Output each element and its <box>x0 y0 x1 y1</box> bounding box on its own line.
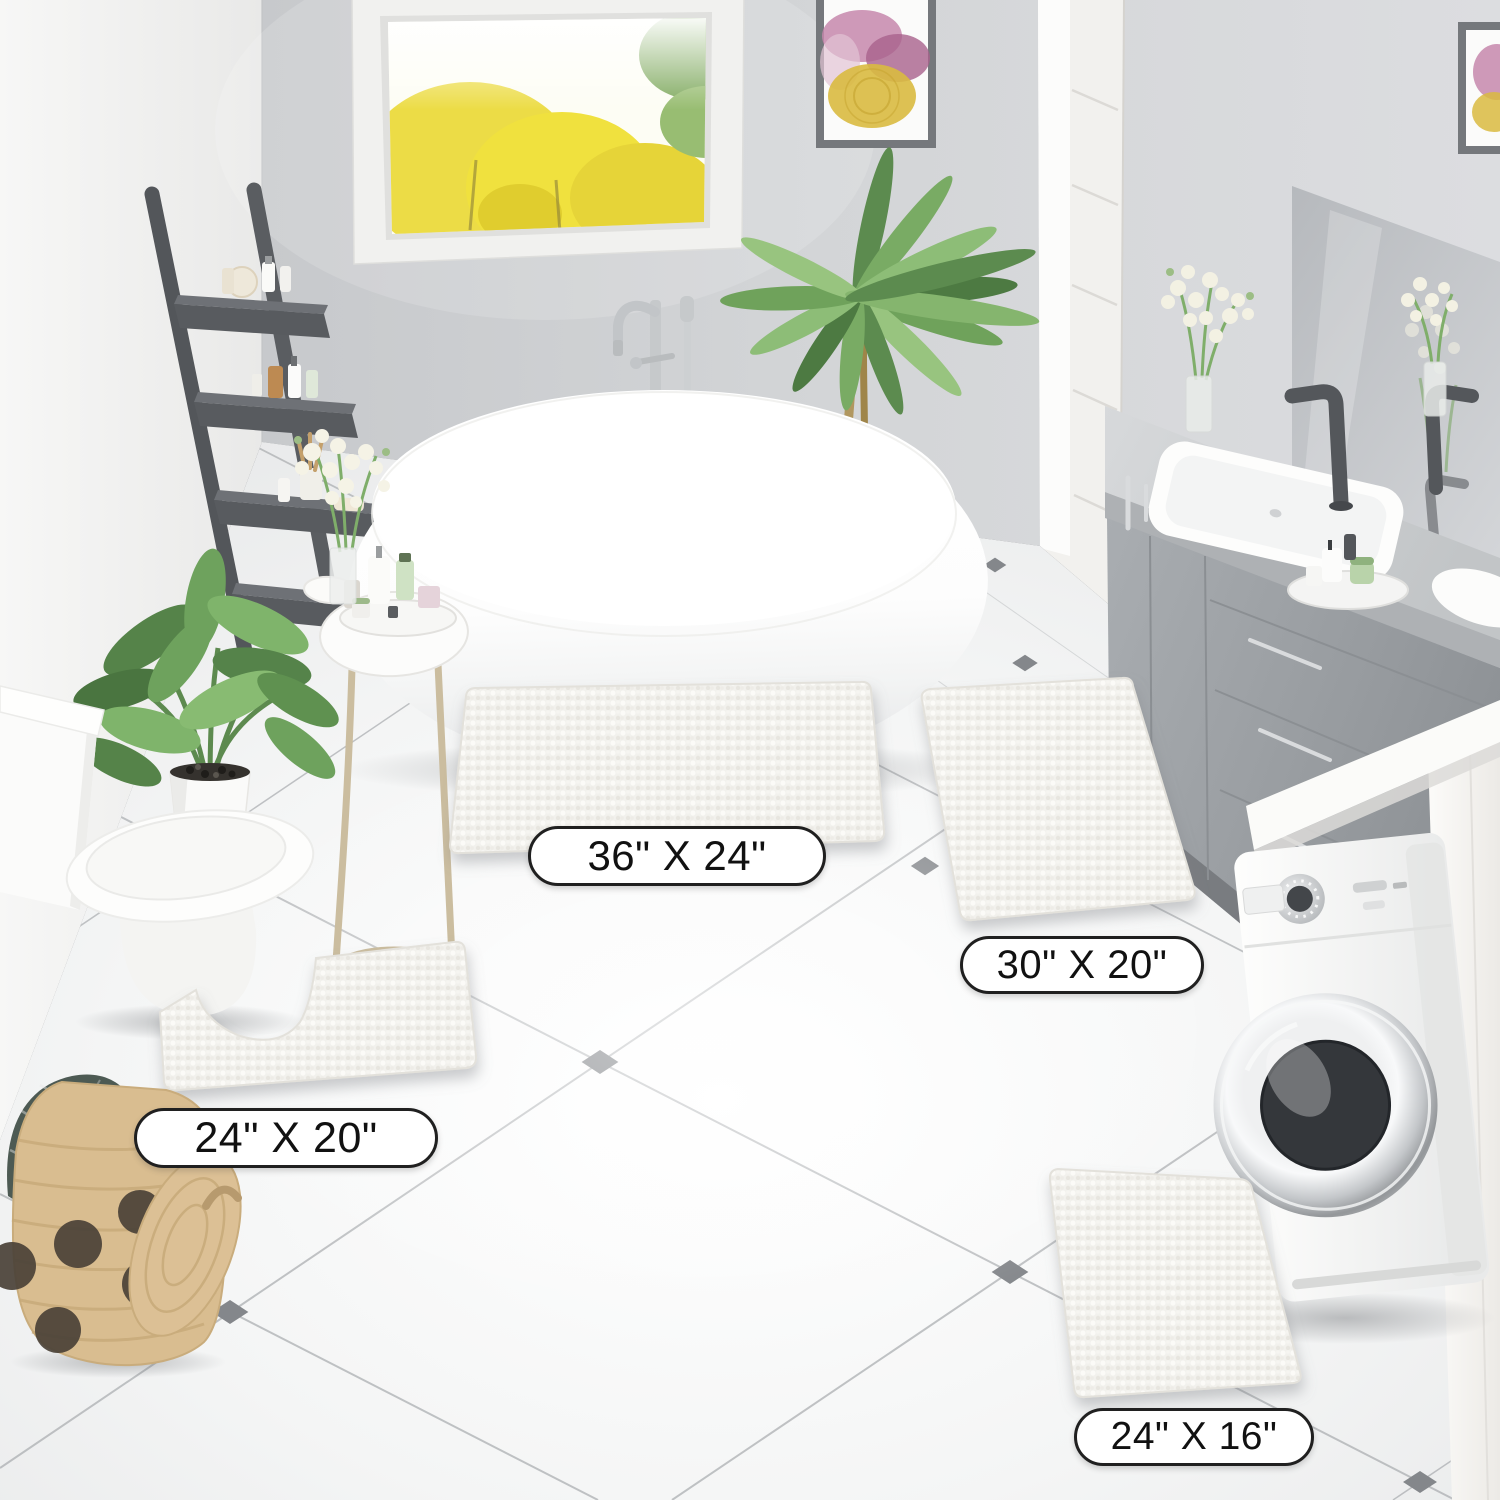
artwork-left <box>816 0 936 148</box>
size-label-rug-large: 36" X 24" <box>528 826 826 886</box>
window <box>352 0 755 264</box>
size-label-rug-contour: 24" X 20" <box>134 1108 438 1168</box>
size-label-rug-small: 24" X 16" <box>1074 1408 1314 1466</box>
size-label-rug-runner: 30" X 20" <box>960 936 1204 994</box>
bathroom-scene-illustration <box>0 0 1500 1500</box>
artwork-right <box>1458 22 1500 154</box>
bathroom-product-scene: 36" X 24" 30" X 20" 24" X 20" 24" X 16" <box>0 0 1500 1500</box>
